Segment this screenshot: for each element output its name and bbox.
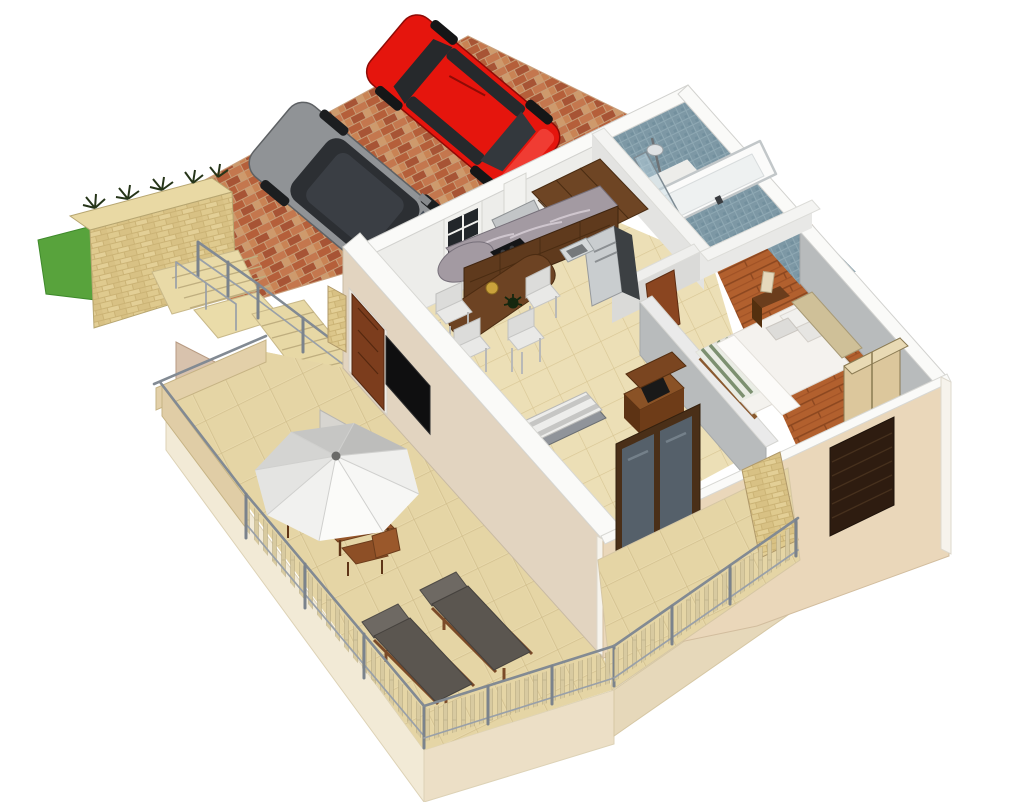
render-canvas: Brick paved driveway Sandstone garden wa… xyxy=(0,0,1024,802)
floorplan-render: Brick paved driveway Sandstone garden wa… xyxy=(0,0,1024,802)
corner-stone-pier xyxy=(328,286,346,352)
se-corner-trim xyxy=(941,377,951,554)
bedside-lamp xyxy=(761,271,775,292)
grass-patch xyxy=(38,226,96,300)
fruit-bowl xyxy=(486,282,498,294)
parasol-finial xyxy=(332,452,341,461)
shower-head xyxy=(647,145,663,156)
